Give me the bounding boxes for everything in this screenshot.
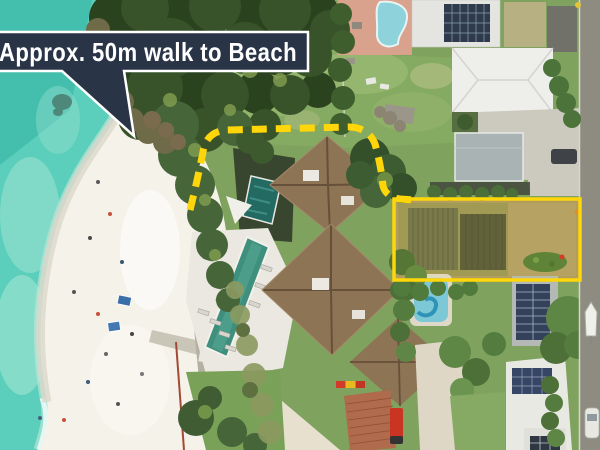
- parked-car: [551, 149, 577, 164]
- solar-array-top: [444, 4, 490, 42]
- white-hip-roof-house: [452, 48, 553, 113]
- dark-driveway: [547, 6, 577, 52]
- grey-flat-roof-house: [455, 133, 523, 181]
- olive-flat-roof: [504, 2, 546, 47]
- aerial-photo: Approx. 50m walk to Beach: [0, 0, 600, 450]
- red-truck: [390, 408, 403, 444]
- car-on-road: [585, 408, 599, 438]
- lawn-strip: [450, 392, 505, 450]
- property-outline: [394, 199, 580, 280]
- patio-table: [352, 22, 362, 29]
- road-marker: [575, 2, 581, 8]
- chimney: [341, 196, 354, 205]
- callout-text: Approx. 50m walk to Beach: [0, 37, 297, 67]
- aerial-scene: Approx. 50m walk to Beach: [0, 0, 600, 450]
- chimney: [312, 278, 329, 290]
- terracotta-roof-house: [344, 390, 396, 450]
- kayak-rack: [336, 381, 365, 388]
- chimney: [352, 310, 365, 319]
- chimney: [303, 170, 319, 181]
